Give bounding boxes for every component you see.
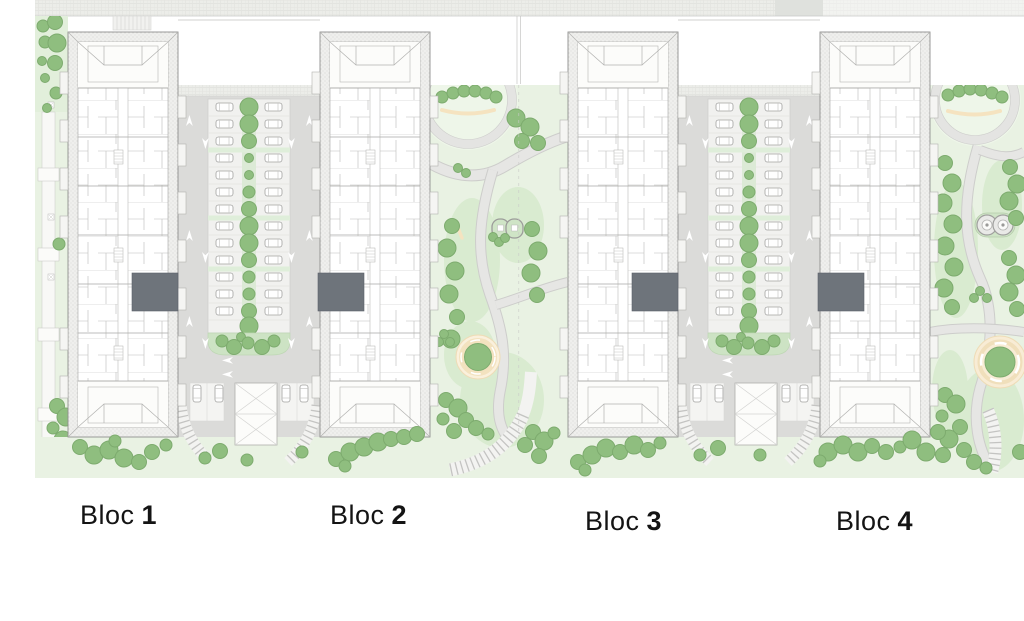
bloc-3-number: 3 [647,506,663,536]
bloc-1-label: Bloc1 [80,500,157,531]
top-sidewalk [35,0,1024,30]
bloc-2-word: Bloc [330,500,385,530]
parking-lot-2 [678,85,820,462]
block-4-entrance-core [818,273,864,311]
bloc-2-number: 2 [392,500,408,530]
site-plan-page: Bloc1 Bloc2 Bloc3 Bloc4 [0,0,1024,621]
bloc-1-word: Bloc [80,500,135,530]
lamp-icon [48,274,54,280]
bloc-3-word: Bloc [585,506,640,536]
crosswalk [113,16,151,30]
block-4-floorplan [812,32,938,437]
central-park [418,50,568,478]
bloc-2-label: Bloc2 [330,500,407,531]
bloc-4-word: Bloc [836,506,891,536]
block-1-floorplan [60,32,186,437]
bloc-3-label: Bloc3 [585,506,662,537]
block-2-floorplan [312,32,438,437]
block-2-entrance-core [318,273,364,311]
lamp-icon [48,214,54,220]
block-1-entrance-core [132,273,178,311]
plaza-icon [456,335,500,379]
bloc-4-label: Bloc4 [836,506,913,537]
bloc-1-number: 1 [142,500,158,530]
bloc-4-number: 4 [898,506,914,536]
block-3-entrance-core [632,273,678,311]
block-3-floorplan [560,32,686,437]
plaza-icon [974,336,1024,388]
east-park [929,54,1024,478]
parking-lot-1 [178,85,320,462]
